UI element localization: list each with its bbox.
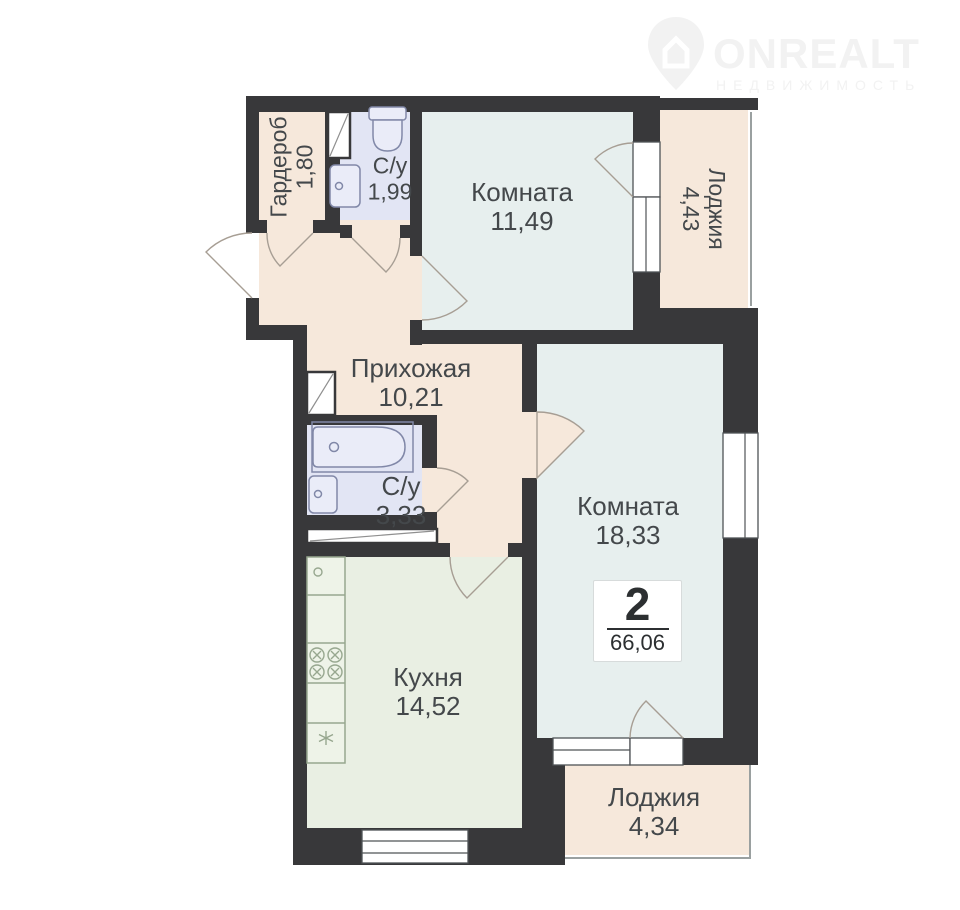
balcony-door-room-1 bbox=[595, 142, 660, 272]
total-area: 66,06 bbox=[594, 631, 681, 655]
room-area: 11,49 bbox=[471, 207, 573, 236]
shaft-strip bbox=[307, 529, 437, 543]
entrance-door bbox=[206, 233, 259, 298]
room-name: Прихожая bbox=[351, 354, 471, 383]
door-arc-bathroom-small bbox=[352, 238, 400, 272]
room-area: 18,33 bbox=[577, 521, 679, 550]
label-bathroom-large: С/у 3,33 bbox=[376, 472, 427, 530]
toilet-icon bbox=[369, 107, 406, 151]
door-arc-room-1 bbox=[422, 256, 467, 320]
room-name: С/у bbox=[376, 472, 427, 501]
room-area: 4,34 bbox=[608, 812, 700, 841]
room-area: 10,21 bbox=[351, 383, 471, 412]
room-area: 14,52 bbox=[393, 692, 463, 721]
door-arc-kitchen bbox=[450, 557, 508, 598]
room-name: С/у bbox=[368, 153, 413, 179]
room-area: 1,80 bbox=[292, 116, 318, 217]
label-kitchen: Кухня 14,52 bbox=[393, 663, 463, 721]
balcony-door-room-2 bbox=[553, 701, 683, 765]
room-name: Комната bbox=[577, 492, 679, 521]
sink-icon bbox=[330, 165, 360, 207]
room-name: Лоджия bbox=[608, 783, 700, 812]
label-hallway: Прихожая 10,21 bbox=[351, 354, 471, 412]
rooms-count: 2 bbox=[594, 583, 681, 627]
apartment-type-badge: 2 66,06 bbox=[593, 580, 682, 662]
room-area: 4,43 bbox=[677, 168, 703, 250]
room-area: 3,33 bbox=[376, 501, 427, 530]
label-room-1: Комната 11,49 bbox=[471, 178, 573, 236]
door-arc-bathroom-large bbox=[437, 468, 468, 512]
window-room-2-right bbox=[723, 433, 758, 538]
room-name: Гардероб bbox=[266, 116, 292, 217]
door-arc-wardrobe bbox=[267, 233, 313, 266]
room-area: 1,99 bbox=[368, 179, 413, 205]
sink-icon bbox=[309, 476, 337, 513]
label-loggia-top: Лоджия 4,43 bbox=[677, 168, 729, 250]
room-name: Лоджия bbox=[703, 168, 729, 250]
label-loggia-bottom: Лоджия 4,34 bbox=[608, 783, 700, 841]
shaft-top bbox=[328, 112, 350, 158]
window-kitchen bbox=[362, 830, 468, 863]
room-name: Комната bbox=[471, 178, 573, 207]
bathtub-icon bbox=[312, 422, 413, 472]
label-room-2: Комната 18,33 bbox=[577, 492, 679, 550]
label-wardrobe: Гардероб 1,80 bbox=[266, 116, 318, 217]
room-name: Кухня bbox=[393, 663, 463, 692]
label-bathroom-small: С/у 1,99 bbox=[368, 153, 413, 205]
door-arc-room-2 bbox=[537, 412, 584, 478]
floorplan-page: ONREALT НЕДВИЖИМОСТЬ bbox=[0, 0, 960, 910]
shaft-mid bbox=[307, 372, 335, 415]
